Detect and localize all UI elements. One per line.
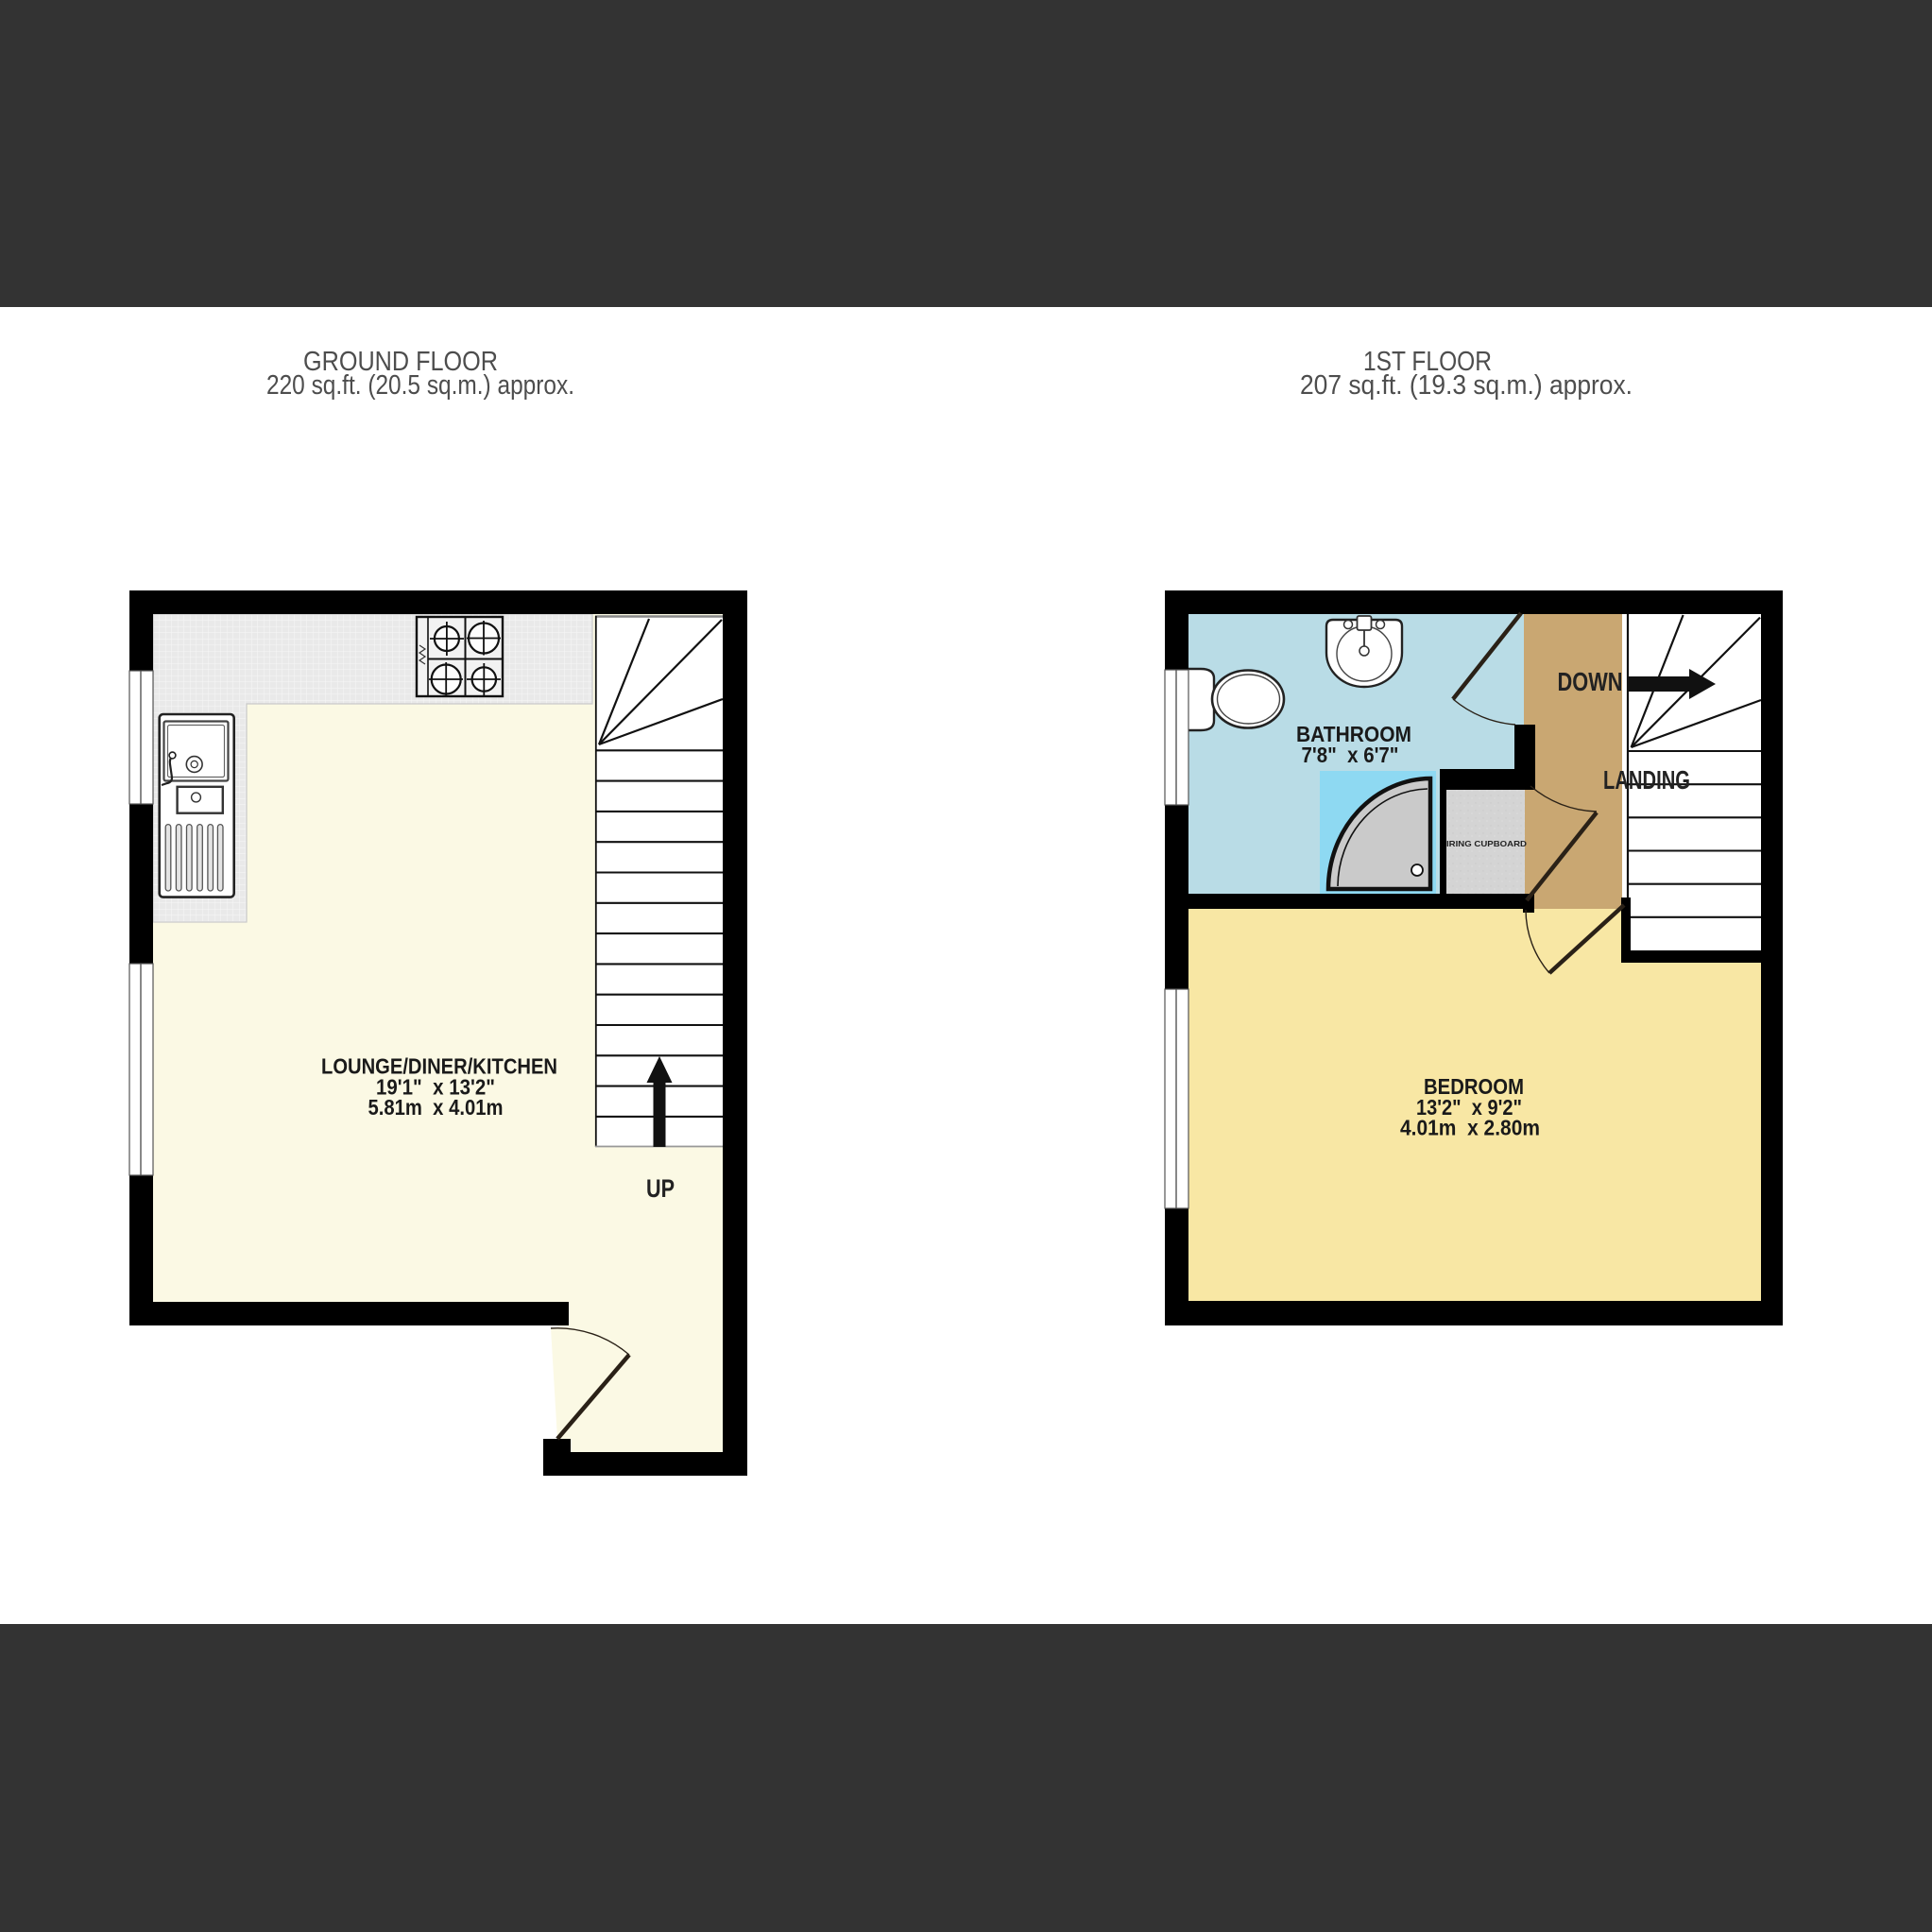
svg-text:4.01m x 2.80m: 4.01m x 2.80m <box>1400 1116 1540 1140</box>
svg-text:DOWN: DOWN <box>1558 667 1623 696</box>
svg-text:5.81m x 4.01m: 5.81m x 4.01m <box>368 1095 504 1120</box>
svg-text:207 sq.ft. (19.3 sq.m.) approx: 207 sq.ft. (19.3 sq.m.) approx. <box>1300 370 1633 401</box>
svg-text:UP: UP <box>646 1174 675 1203</box>
svg-text:7'8" x 6'7": 7'8" x 6'7" <box>1302 743 1399 767</box>
svg-text:220 sq.ft. (20.5 sq.m.) approx: 220 sq.ft. (20.5 sq.m.) approx. <box>266 370 574 401</box>
svg-text:LANDING: LANDING <box>1603 765 1690 795</box>
svg-text:AIRING CUPBOARD: AIRING CUPBOARD <box>1440 839 1527 848</box>
